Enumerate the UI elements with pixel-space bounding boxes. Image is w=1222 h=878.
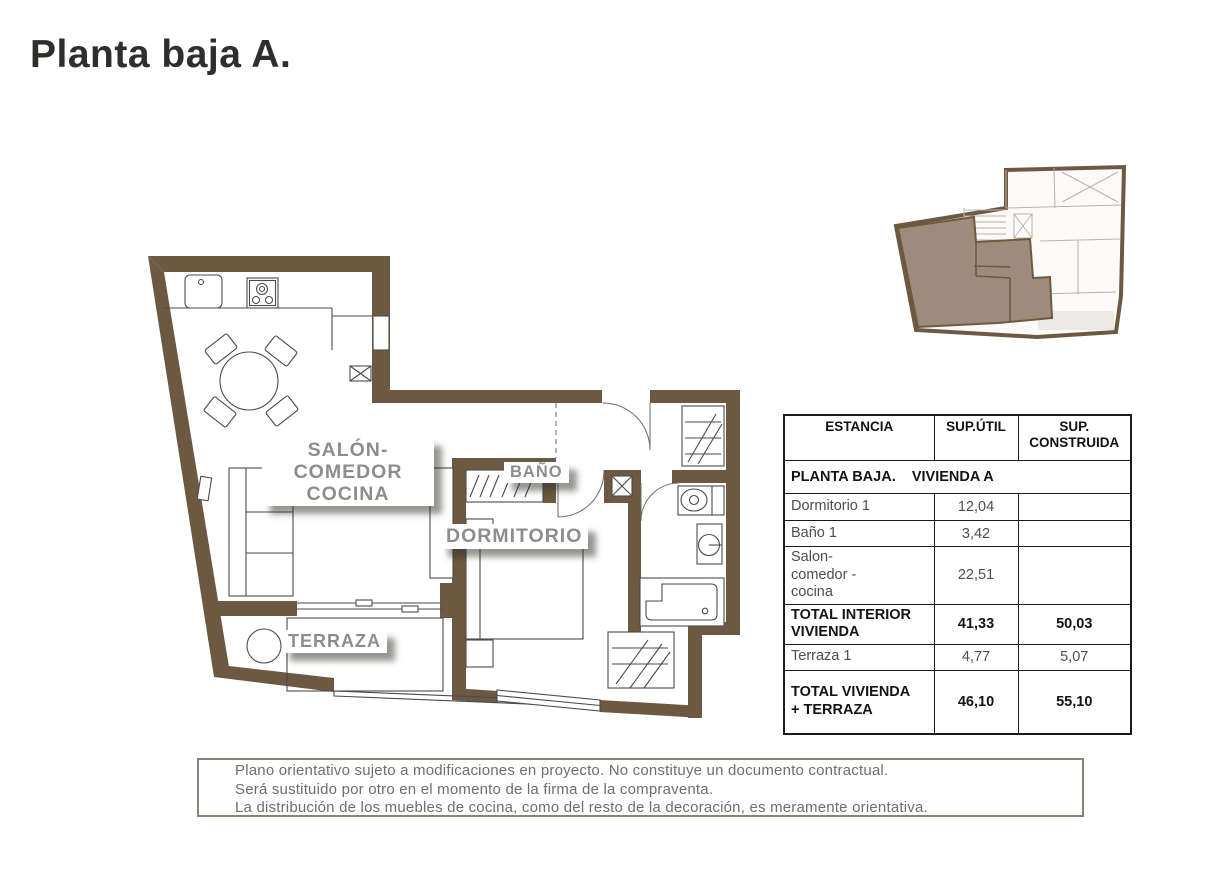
header-sup-construida: SUP. CONSTRUIDA (1018, 415, 1131, 461)
terrace-sliding-door (297, 600, 442, 612)
cell-sup-construida: 55,10 (1018, 670, 1131, 734)
disclaimer-line-1: Plano orientativo sujeto a modificacione… (235, 762, 1082, 781)
main-floor-plan (130, 240, 790, 760)
hall-closet-hatch (682, 406, 724, 466)
cell-estancia: Baño 1 (784, 521, 934, 547)
key-plan-elevator (1014, 214, 1032, 238)
cell-sup-construida: 50,03 (1018, 604, 1131, 644)
kitchen-counter (164, 308, 372, 350)
table-header-row: ESTANCIA SUP.ÚTIL SUP. CONSTRUIDA (784, 415, 1131, 461)
table-row: Terraza 14,775,07 (784, 644, 1131, 670)
table-row: Salon- comedor - cocina22,51 (784, 547, 1131, 605)
header-sup-util: SUP.ÚTIL (934, 415, 1018, 461)
cell-sup-construida (1018, 547, 1131, 605)
header-estancia: ESTANCIA (784, 415, 934, 461)
cell-sup-util: 4,77 (934, 644, 1018, 670)
table-section-row: PLANTA BAJA. VIVIENDA A (784, 461, 1131, 494)
kitchen-niche (373, 316, 389, 350)
table-row: Dormitorio 112,04 (784, 494, 1131, 521)
cell-sup-util: 3,42 (934, 521, 1018, 547)
cell-sup-util: 22,51 (934, 547, 1018, 605)
kitchen-sink-icon (185, 275, 222, 308)
cell-sup-util: 46,10 (934, 670, 1018, 734)
cell-sup-construida (1018, 494, 1131, 521)
table-section-title: PLANTA BAJA. VIVIENDA A (784, 461, 1131, 494)
key-plan (878, 146, 1130, 346)
bedroom-window (497, 690, 600, 711)
disclaimer-box: Plano orientativo sujeto a modificacione… (197, 758, 1084, 817)
left-wall-window (197, 476, 211, 500)
washbasin-icon (678, 486, 724, 515)
table-row: Baño 13,42 (784, 521, 1131, 547)
area-table-body: PLANTA BAJA. VIVIENDA ADormitorio 112,04… (784, 461, 1131, 735)
terrace-table (247, 629, 281, 663)
floor-plan-sheet: Planta baja A. (0, 0, 1222, 878)
cell-sup-construida: 5,07 (1018, 644, 1131, 670)
cell-estancia: TOTAL VIVIENDA + TERRAZA (784, 670, 934, 734)
room-label-salon: SALÓN-COMEDOR COCINA (262, 438, 434, 506)
room-label-terraza: TERRAZA (282, 630, 387, 653)
cell-sup-util: 41,33 (934, 604, 1018, 644)
surface-area-table: ESTANCIA SUP.ÚTIL SUP. CONSTRUIDA PLANTA… (783, 414, 1132, 735)
cell-estancia: TOTAL INTERIOR VIVIENDA (784, 604, 934, 644)
stove-icon (247, 278, 278, 308)
table-row: TOTAL INTERIOR VIVIENDA41,3350,03 (784, 604, 1131, 644)
bathtub-icon (640, 578, 724, 626)
dining-table (203, 333, 298, 427)
disclaimer-line-2: Será sustituido por otro en el momento d… (235, 781, 1082, 800)
cell-estancia: Terraza 1 (784, 644, 934, 670)
front-door-arc (603, 403, 650, 450)
table-row: TOTAL VIVIENDA + TERRAZA46,1055,10 (784, 670, 1131, 734)
page-title: Planta baja A. (30, 33, 291, 77)
cell-estancia: Salon- comedor - cocina (784, 547, 934, 605)
salon-label-line1: SALÓN-COMEDOR (294, 439, 403, 483)
toilet-icon (697, 524, 722, 564)
room-label-bano: BAÑO (504, 462, 569, 483)
shaft-vent-icon (612, 476, 632, 496)
salon-label-line2: COCINA (307, 483, 390, 505)
disclaimer-line-3: La distribución de los muebles de cocina… (235, 799, 1082, 818)
bathroom-door-arc (641, 483, 679, 521)
bedroom-closet-hatch (608, 632, 674, 688)
cell-estancia: Dormitorio 1 (784, 494, 934, 521)
cell-sup-construida (1018, 521, 1131, 547)
room-label-dormitorio: DORMITORIO (440, 524, 588, 549)
cell-sup-util: 12,04 (934, 494, 1018, 521)
wall-vent-icon (350, 366, 371, 381)
